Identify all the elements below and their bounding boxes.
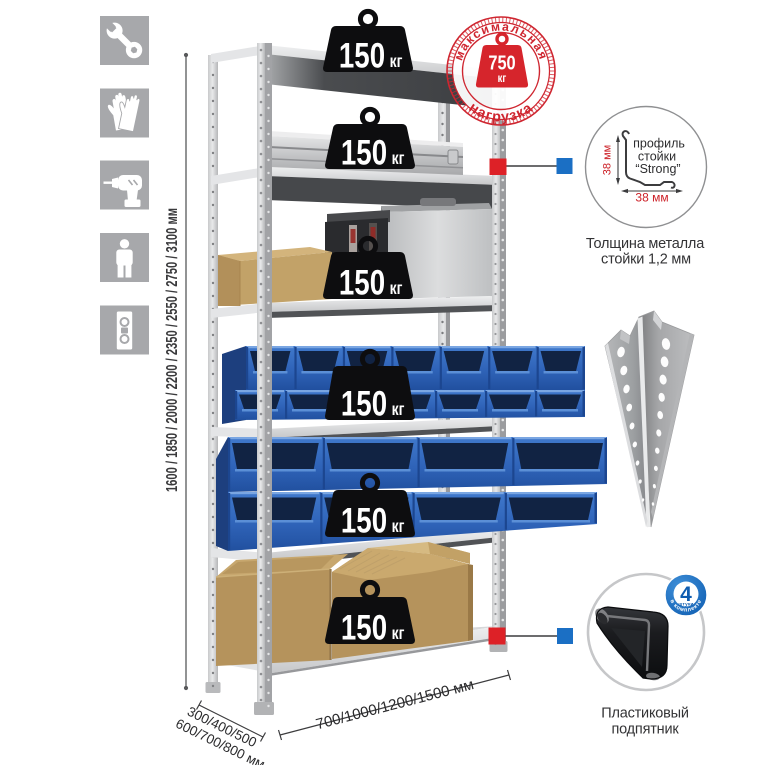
svg-text:“Strong”: “Strong”	[635, 162, 680, 176]
svg-text:кг: кг	[392, 150, 405, 169]
svg-text:кг: кг	[392, 518, 405, 537]
svg-text:штуки: штуки	[678, 602, 693, 607]
svg-text:150: 150	[341, 132, 387, 172]
svg-text:Толщина металла: Толщина металла	[586, 236, 705, 252]
svg-text:38 мм: 38 мм	[635, 191, 668, 205]
svg-text:профиль: профиль	[633, 137, 685, 151]
svg-text:кг: кг	[392, 625, 405, 644]
svg-text:150: 150	[341, 383, 387, 423]
svg-text:150: 150	[341, 500, 387, 540]
svg-text:подпятник: подпятник	[611, 722, 679, 738]
svg-text:кг: кг	[498, 72, 507, 85]
svg-text:150: 150	[341, 607, 387, 647]
svg-text:750: 750	[488, 51, 515, 74]
svg-text:38 мм: 38 мм	[602, 145, 614, 175]
svg-text:Пластиковый: Пластиковый	[601, 706, 689, 722]
svg-text:кг: кг	[390, 280, 403, 299]
svg-text:кг: кг	[392, 401, 405, 420]
svg-text:150: 150	[339, 262, 385, 302]
svg-text:150: 150	[339, 35, 385, 75]
svg-text:стойки 1,2 мм: стойки 1,2 мм	[601, 252, 691, 268]
svg-text:1600 / 1850 / 2000 / 2200 / 23: 1600 / 1850 / 2000 / 2200 / 2350 / 2550 …	[162, 208, 181, 492]
svg-text:кг: кг	[390, 53, 403, 72]
